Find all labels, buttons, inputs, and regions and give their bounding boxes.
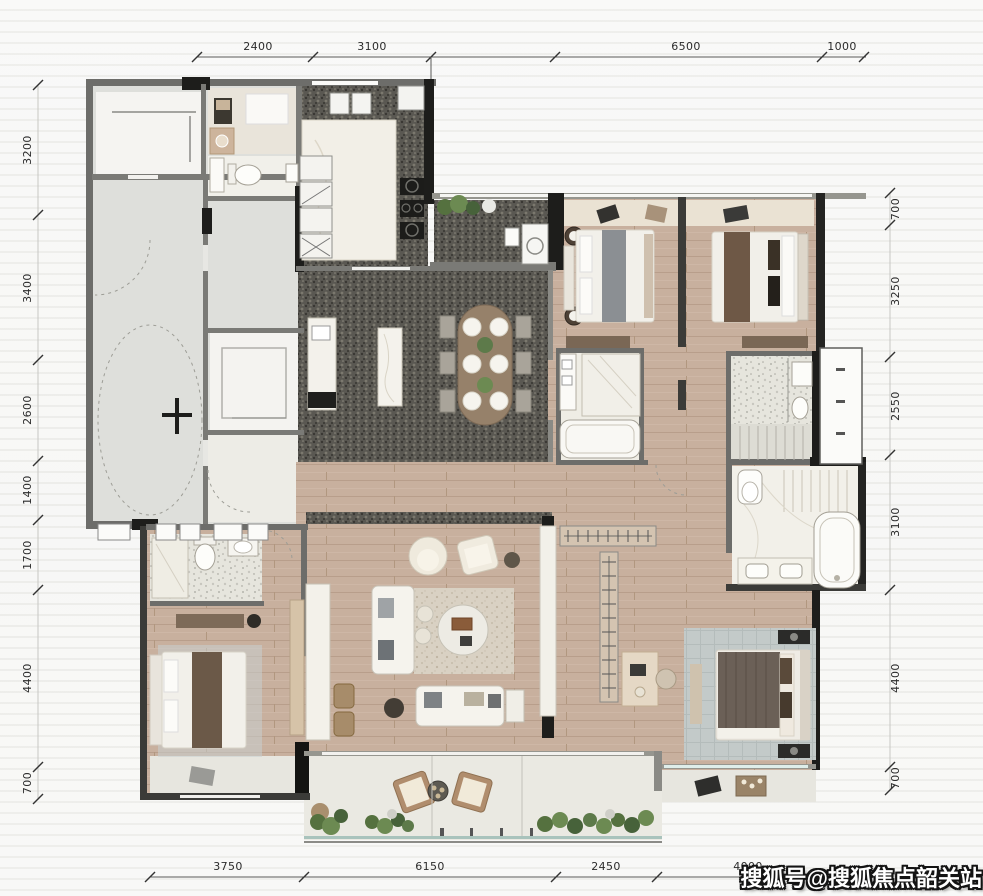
washing-machine: [522, 224, 548, 264]
bath3-toilet: [195, 544, 215, 570]
dim-top-2: 6500: [671, 40, 701, 53]
dim-bottom-0: 3750: [213, 860, 243, 873]
cooktop: [400, 178, 424, 239]
dim-right-3: 3100: [889, 507, 902, 537]
dimension-top: 2400 3100 6500 1000: [192, 40, 869, 79]
console-table: [506, 690, 524, 722]
bed3-runner: [192, 652, 222, 748]
dim-bottom-1: 6150: [415, 860, 445, 873]
dining-island: [378, 328, 402, 406]
dim-top-0: 2400: [243, 40, 273, 53]
master-blanket: [718, 652, 780, 728]
desk: [622, 652, 658, 706]
watermark-text: 搜狐号@搜狐焦点韶关站: [741, 861, 982, 893]
bed1-bench: [566, 336, 630, 348]
dim-left-0: 3200: [21, 135, 34, 165]
dim-left-2: 2600: [21, 395, 34, 425]
bed2-headboard: [798, 234, 808, 320]
bed3-headboard: [150, 655, 162, 745]
entry-toilet: [235, 165, 261, 185]
dim-left-3: 1400: [21, 475, 34, 505]
service-sink: [505, 228, 519, 246]
master-headboard: [800, 650, 810, 740]
dim-bottom-2: 2450: [591, 860, 621, 873]
dimension-right: 700 3250 2550 3100 4400 700: [885, 188, 902, 795]
bath2-sink: [792, 362, 812, 386]
table-plant: [477, 337, 493, 353]
dim-left-1: 3400: [21, 273, 34, 303]
bath2-toilet: [792, 397, 808, 419]
stool: [334, 684, 354, 708]
floor-plan-drawing: 2400 3100 6500 1000 3200 3400 2600 1400 …: [0, 0, 983, 896]
balcony-glass-rail: [304, 836, 662, 839]
dim-right-1: 3250: [889, 276, 902, 306]
wardrobe: [290, 600, 304, 735]
entry-mat: [246, 94, 288, 124]
top-left-room-floor: [96, 92, 202, 176]
dim-right-5: 700: [889, 767, 902, 789]
equipment-platform: [820, 348, 862, 464]
bed1-runner: [602, 230, 626, 322]
dim-right-4: 4400: [889, 663, 902, 693]
dimension-left: 3200 3400 2600 1400 1700 4400 700: [21, 80, 43, 804]
side-table-round: [504, 552, 520, 568]
marble-hall-floor: [208, 434, 305, 522]
dim-top-1: 3100: [357, 40, 387, 53]
bed1-headboard: [564, 246, 574, 310]
living-marble-divider: [540, 526, 556, 716]
study-floor: [210, 332, 302, 430]
bed-bench: [690, 664, 702, 724]
ottoman: [384, 698, 404, 718]
tv-marble-wall: [306, 584, 330, 740]
dim-left-6: 700: [21, 772, 34, 794]
living-threshold: [306, 512, 552, 524]
plant-pot-icon: [247, 614, 261, 628]
dim-right-0: 700: [889, 198, 902, 220]
kitchen-sink-left: [330, 93, 349, 114]
dim-right-2: 2550: [889, 391, 902, 421]
kitchen-sink-right: [352, 93, 371, 114]
bath1: [560, 354, 640, 458]
dim-top-3: 1000: [827, 40, 857, 53]
bedroom3-bay: [150, 756, 304, 798]
bed2-runner: [724, 232, 750, 322]
bed2-bench: [742, 336, 808, 348]
floor-plan-page: 2400 3100 6500 1000 3200 3400 2600 1400 …: [0, 0, 983, 896]
dim-left-5: 4400: [21, 663, 34, 693]
dim-left-4: 1700: [21, 540, 34, 570]
desk-chair: [656, 669, 676, 689]
bedroom3-console: [176, 614, 244, 628]
